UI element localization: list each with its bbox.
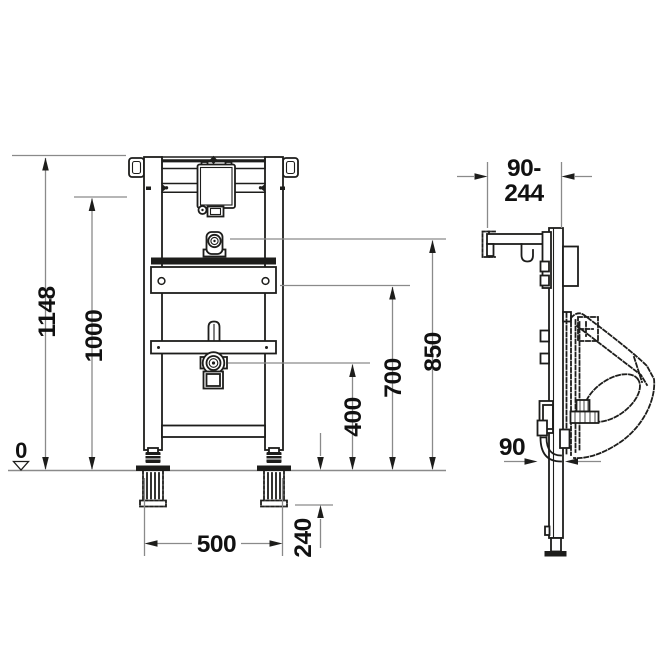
wall-ear-right: [283, 158, 298, 177]
datum-triangle: [14, 462, 29, 471]
side-view: [483, 228, 655, 557]
wall-ear-left: [129, 158, 144, 177]
dark-strut: [151, 258, 276, 265]
dim-depth-range-line1: 90-: [507, 155, 541, 182]
pipe-stub: [209, 322, 220, 342]
front-view-dimensions: 1148 1000 0 850 700 400 240: [12, 156, 447, 559]
side-housing-box: [563, 247, 578, 287]
mounting-rail-700: [151, 267, 276, 293]
frame-post-right: [265, 157, 283, 450]
dim-depth-range-line2: 244: [504, 180, 544, 207]
dim-850-label: 850: [420, 332, 447, 371]
lower-cross-rail: [162, 426, 265, 438]
front-view-frame: [8, 156, 446, 507]
dim-outlet-90-label: 90: [499, 434, 525, 461]
foot-left: [136, 448, 170, 507]
dim-400-label: 400: [340, 397, 367, 436]
dim-1000-label: 1000: [81, 310, 108, 363]
dim-500-label: 500: [197, 531, 236, 558]
dim-240-label: 240: [290, 518, 317, 557]
drain-fitting: [201, 352, 228, 388]
technical-drawing-urinal-frame: 1148 1000 0 850 700 400 240: [0, 0, 672, 672]
dim-700-label: 700: [380, 358, 407, 397]
water-connection-fitting: [204, 232, 226, 257]
frame-post-left: [144, 157, 162, 450]
drawing-svg: 1148 1000 0 850 700 400 240: [0, 0, 672, 672]
dim-floor-datum-label: 0: [15, 438, 27, 463]
dim-overall-height-label: 1148: [34, 286, 61, 337]
urinal-outline: [567, 313, 655, 458]
foot-right: [257, 448, 291, 507]
wall-bracket: [483, 232, 550, 262]
flush-unit-box: [198, 162, 236, 217]
